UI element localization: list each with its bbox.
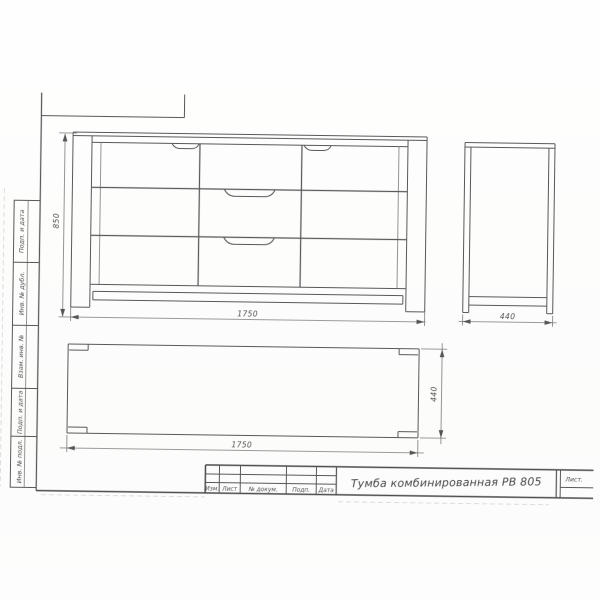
title-block-col-list: Лист	[221, 487, 238, 493]
title-block-sheet-label: Лист.	[564, 476, 583, 483]
stamp-podp-data-1: Подп. и дата	[17, 209, 26, 253]
title-block-col-izm: Изм.	[205, 486, 219, 492]
front-width-label: 1750	[237, 309, 258, 318]
side-view	[463, 143, 555, 314]
title-block-col-data: Дата	[318, 488, 335, 494]
top-depth-label: 440	[429, 386, 438, 402]
dimension-top-depth: 440	[420, 343, 447, 444]
drawing-frame	[36, 93, 600, 499]
title-block-col-podp: Подп.	[292, 488, 310, 494]
stamp-vzam-inv: Взам. инв. №	[17, 334, 26, 378]
dimension-top-width: 1750	[60, 435, 424, 457]
drawing-title: Тумба комбинированная РВ 805	[351, 475, 542, 490]
scanned-drawing-page: Подп. и дата Инв. № дубл. Взам. инв. № П…	[0, 0, 600, 600]
title-block-col-dokum: № докум.	[248, 486, 278, 493]
side-stamp-column: Подп. и дата Инв. № дубл. Взам. инв. № П…	[10, 200, 40, 487]
top-view	[67, 344, 419, 438]
top-width-label: 1750	[231, 440, 252, 449]
stamp-podp-data-2: Подп. и дата	[16, 390, 25, 434]
stamp-inv-dubl: Инв. № дубл.	[18, 271, 27, 315]
side-depth-label: 440	[500, 312, 516, 321]
drawing-canvas: Подп. и дата Инв. № дубл. Взам. инв. № П…	[0, 0, 600, 608]
dimension-side-depth: 440	[459, 311, 557, 326]
dimension-front-width: 1750	[59, 307, 426, 326]
front-view	[71, 132, 427, 312]
front-height-label: 850	[52, 213, 61, 229]
stamp-inv-podl: Инв. № подл.	[15, 439, 24, 483]
drawing-sheet: Подп. и дата Инв. № дубл. Взам. инв. № П…	[0, 0, 600, 608]
